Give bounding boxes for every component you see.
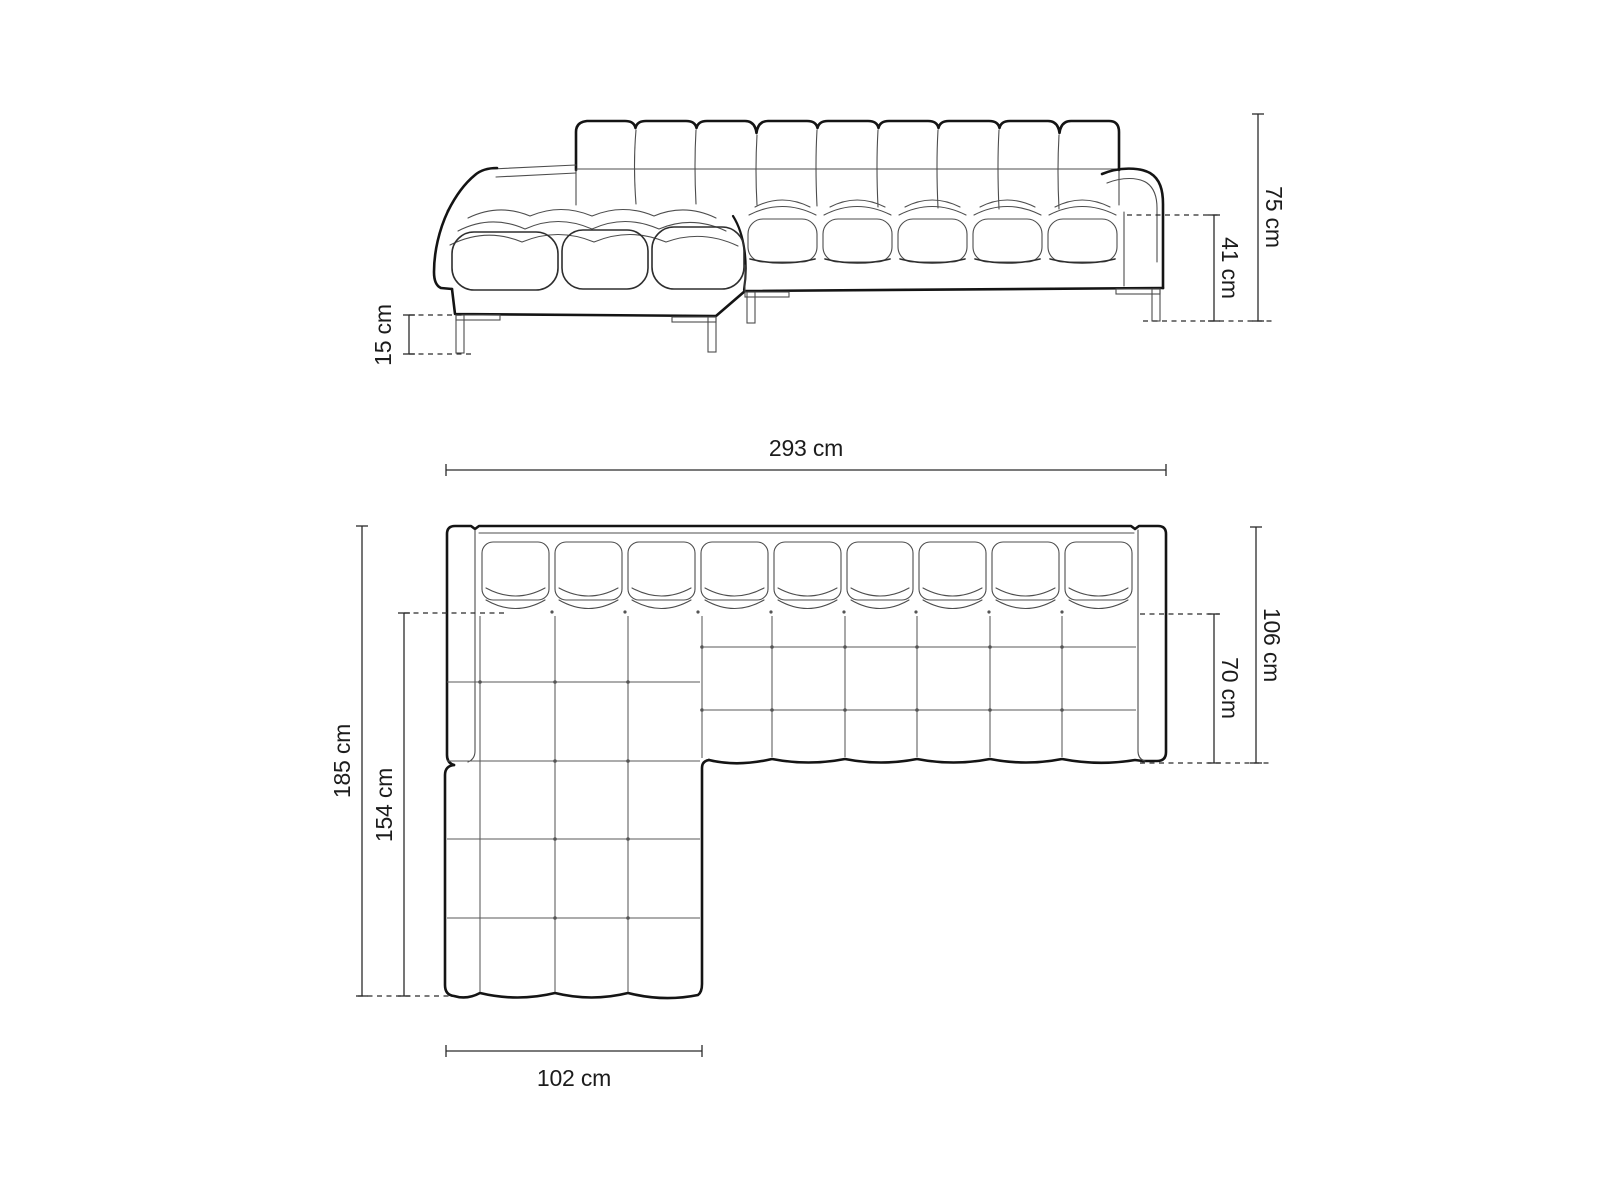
- dim-label-chaise-width: 102 cm: [537, 1065, 611, 1091]
- dim-label-total-height: 75 cm: [1261, 186, 1287, 248]
- dim-label-seat-depth: 70 cm: [1217, 657, 1243, 719]
- dim-label-seat-height: 41 cm: [1217, 237, 1243, 299]
- dim-label-total-width: 293 cm: [769, 435, 843, 461]
- dim-label-body-depth: 106 cm: [1259, 608, 1285, 682]
- drawing-canvas: 75 cm 41 cm 15 cm: [0, 0, 1600, 1200]
- dim-label-leg-height: 15 cm: [370, 304, 396, 366]
- sofa-dimension-drawing: 75 cm 41 cm 15 cm: [0, 0, 1600, 1200]
- dim-label-total-depth: 185 cm: [329, 724, 355, 798]
- dim-label-chaise-depth: 154 cm: [371, 768, 397, 842]
